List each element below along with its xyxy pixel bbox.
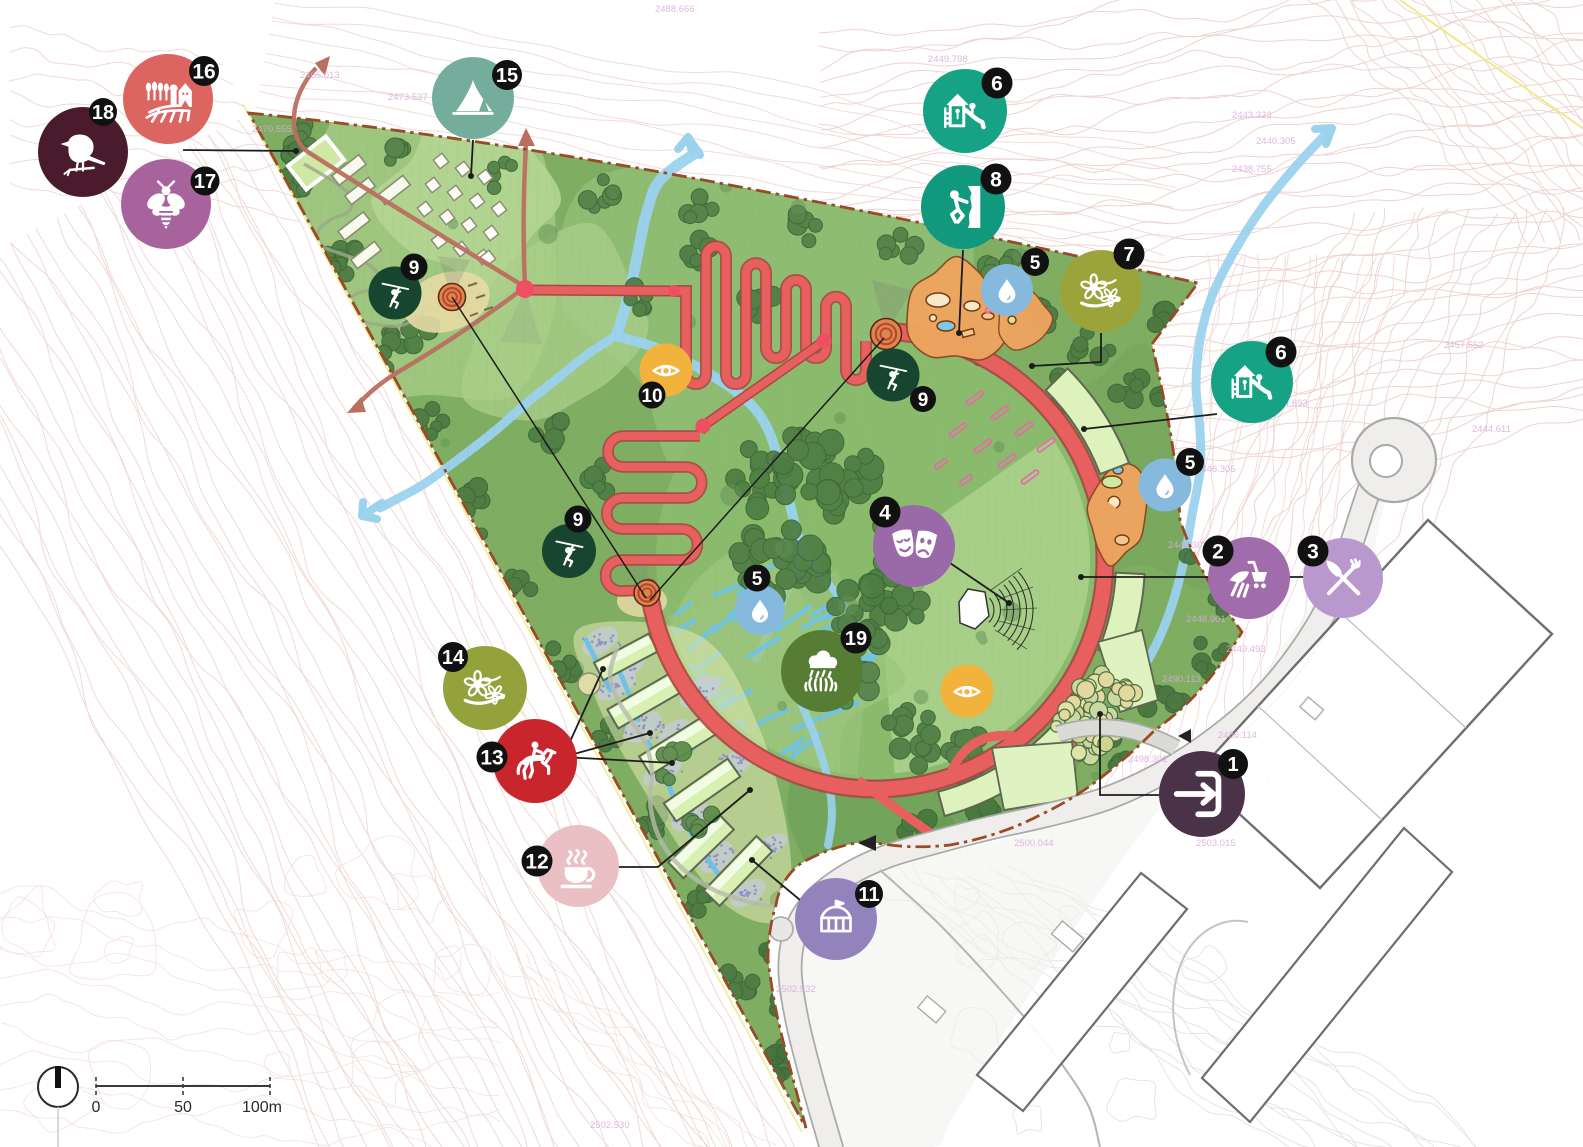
svg-text:7: 7 — [1123, 244, 1134, 266]
svg-text:15: 15 — [496, 65, 518, 87]
svg-text:5: 5 — [1030, 253, 1041, 274]
svg-text:11: 11 — [858, 884, 879, 906]
svg-text:16: 16 — [192, 61, 215, 84]
svg-text:2470.555: 2470.555 — [252, 124, 292, 135]
svg-text:17: 17 — [194, 171, 216, 193]
svg-text:19: 19 — [845, 628, 867, 650]
svg-text:4: 4 — [879, 502, 891, 525]
svg-text:14: 14 — [442, 647, 465, 669]
svg-text:2502.532: 2502.532 — [776, 984, 816, 995]
svg-text:2502.530: 2502.530 — [590, 1120, 630, 1131]
svg-text:2500.044: 2500.044 — [1014, 838, 1054, 849]
svg-text:50: 50 — [174, 1099, 192, 1116]
svg-text:9: 9 — [409, 258, 420, 279]
svg-text:9: 9 — [573, 510, 584, 531]
svg-text:2449.798: 2449.798 — [928, 54, 968, 65]
svg-text:100m: 100m — [242, 1099, 282, 1116]
svg-text:2438.755: 2438.755 — [1232, 164, 1272, 175]
svg-text:2440.305: 2440.305 — [1256, 136, 1296, 147]
svg-text:2457.552: 2457.552 — [1444, 340, 1484, 351]
svg-text:2443.323: 2443.323 — [1232, 110, 1272, 121]
svg-text:8: 8 — [990, 169, 1002, 192]
svg-text:2448.901: 2448.901 — [1186, 614, 1226, 625]
svg-text:5: 5 — [752, 569, 763, 590]
svg-text:1: 1 — [1227, 754, 1238, 776]
svg-text:13: 13 — [480, 747, 503, 770]
svg-text:2446.302: 2446.302 — [1168, 540, 1208, 551]
svg-text:12: 12 — [525, 851, 548, 874]
svg-text:6: 6 — [1275, 342, 1287, 365]
svg-text:2449.493: 2449.493 — [1226, 644, 1266, 655]
svg-text:3: 3 — [1307, 541, 1319, 564]
svg-text:5: 5 — [1185, 453, 1196, 474]
svg-text:2490.113: 2490.113 — [1162, 674, 1201, 685]
svg-text:0: 0 — [92, 1099, 101, 1116]
svg-text:18: 18 — [92, 102, 114, 124]
svg-text:2473.537: 2473.537 — [388, 92, 428, 103]
svg-text:2: 2 — [1212, 541, 1224, 564]
svg-text:2498.302: 2498.302 — [1128, 754, 1168, 765]
svg-text:2465.013: 2465.013 — [300, 70, 340, 81]
svg-text:2503.015: 2503.015 — [1196, 838, 1236, 849]
svg-text:10: 10 — [641, 386, 662, 407]
svg-text:9: 9 — [918, 390, 929, 411]
svg-text:6: 6 — [991, 73, 1003, 96]
svg-text:2444.611: 2444.611 — [1472, 424, 1511, 435]
svg-text:2486.114: 2486.114 — [1218, 730, 1257, 741]
svg-text:2488.666: 2488.666 — [655, 4, 695, 15]
